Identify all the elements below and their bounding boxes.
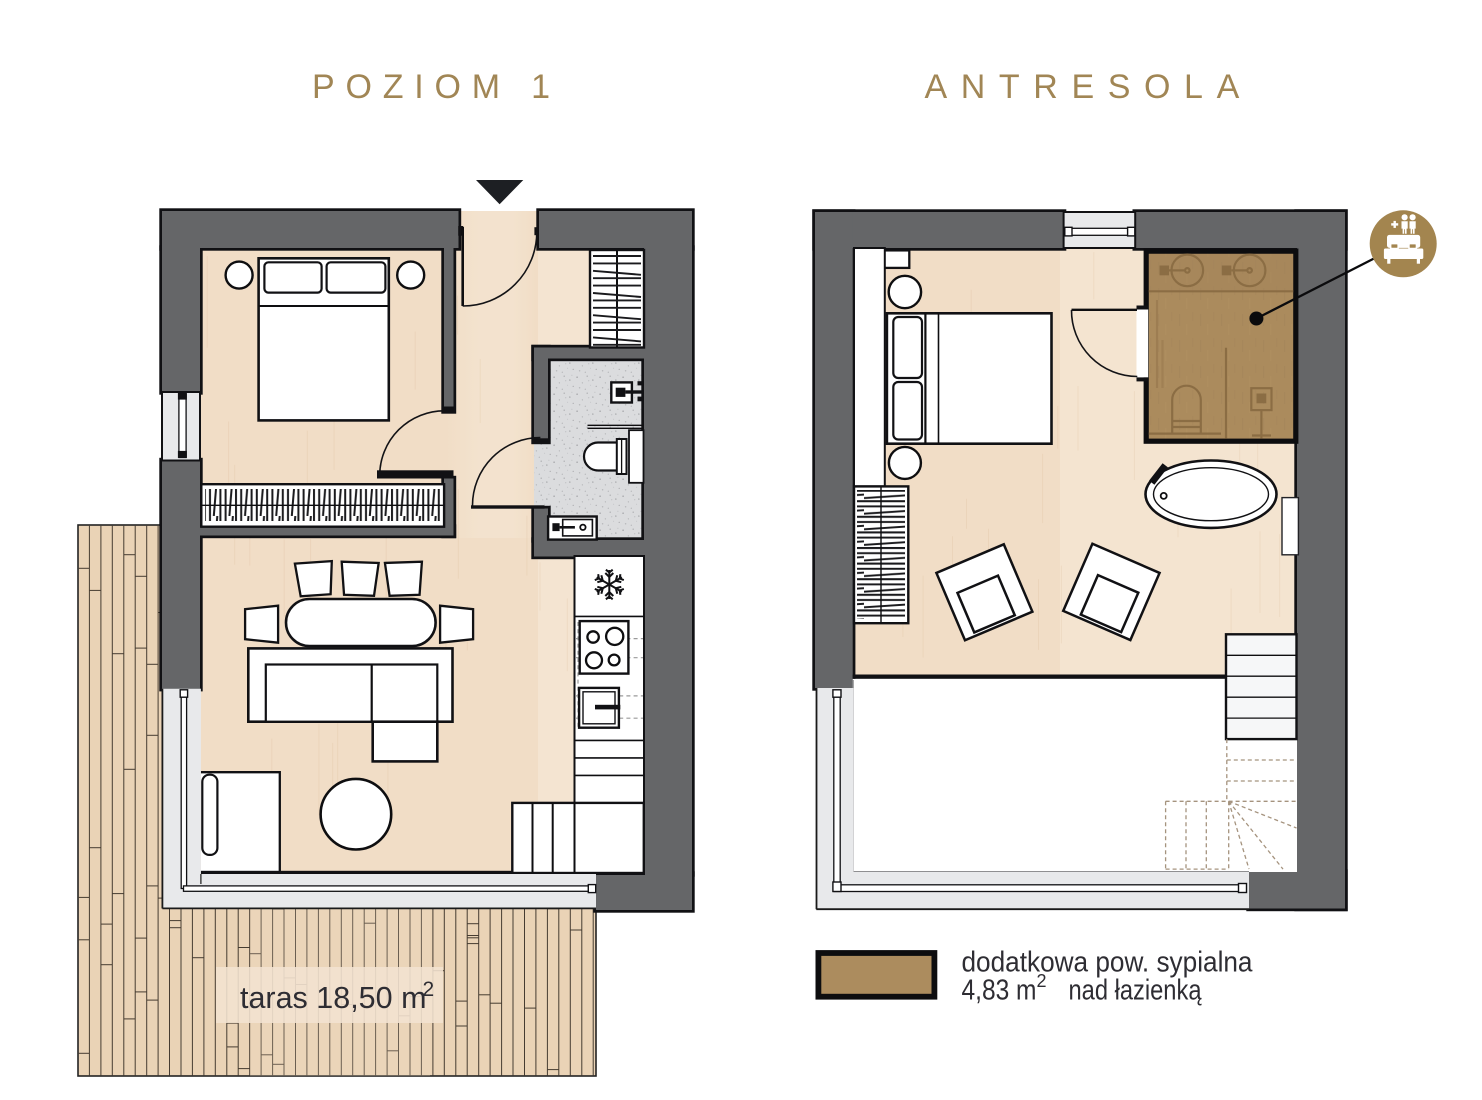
svg-text:taras 18,50 m: taras 18,50 m [240, 981, 427, 1015]
svg-text:2: 2 [1037, 971, 1047, 991]
svg-text:nad łazienką: nad łazienką [1069, 975, 1202, 1007]
svg-text:2: 2 [423, 978, 435, 1001]
svg-text:4,83 m: 4,83 m [962, 975, 1037, 1007]
svg-text:POZIOM 1: POZIOM 1 [312, 68, 561, 106]
svg-text:ANTRESOLA: ANTRESOLA [925, 68, 1253, 106]
